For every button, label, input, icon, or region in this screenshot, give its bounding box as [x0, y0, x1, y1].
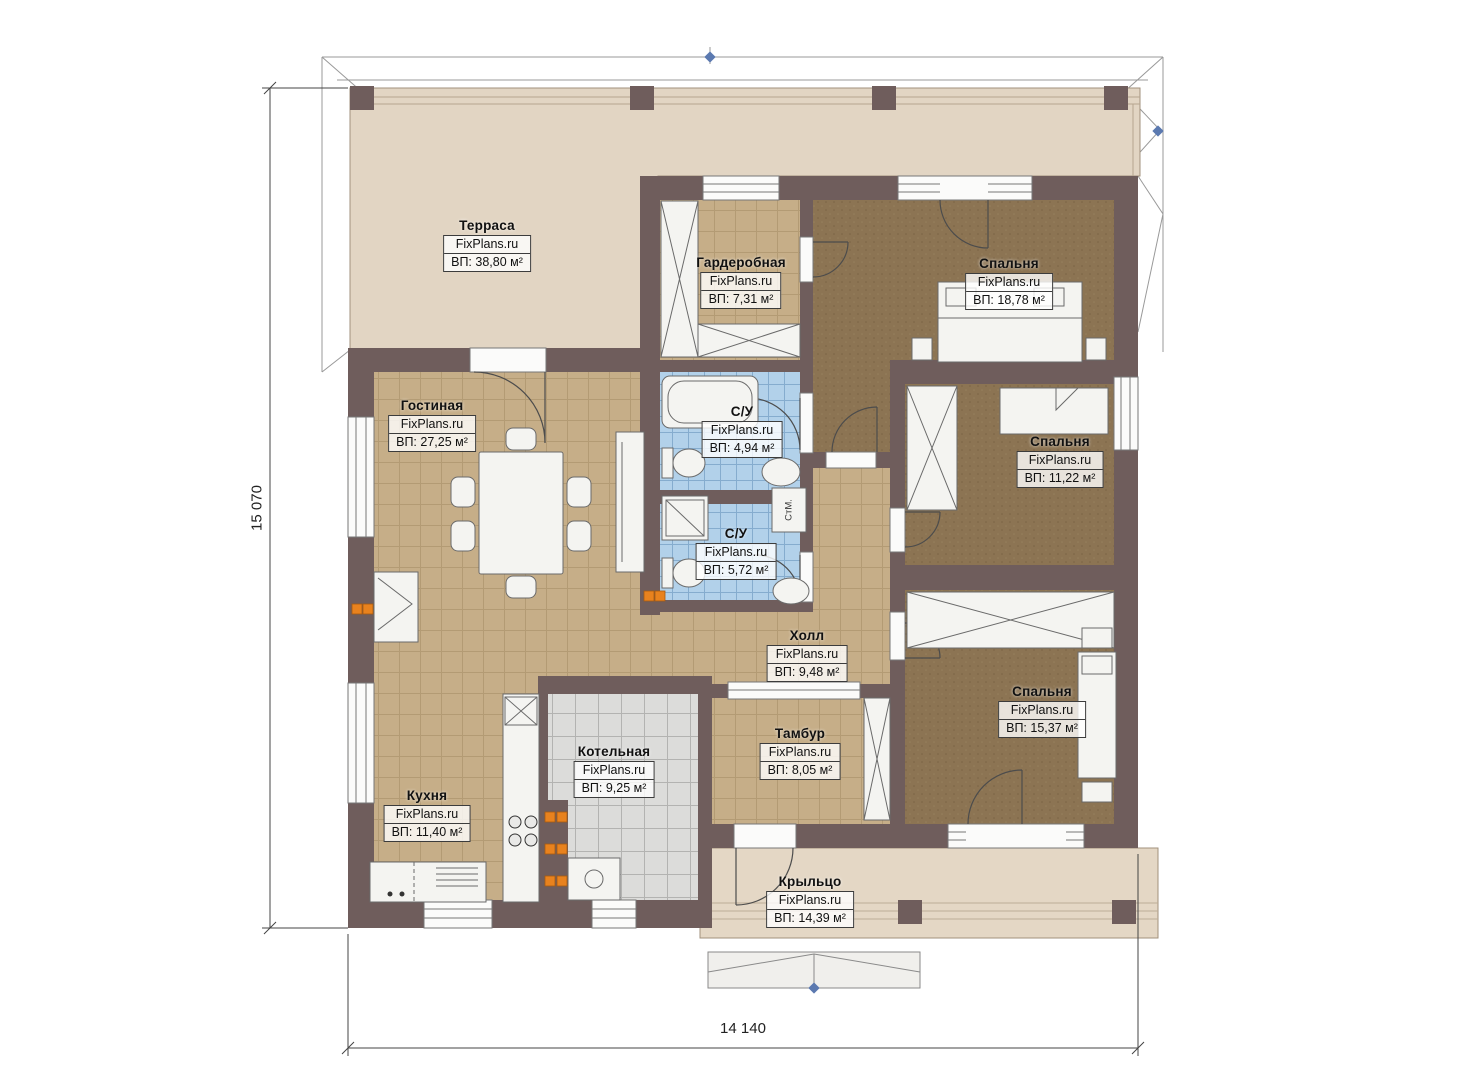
nightstand: [912, 338, 932, 360]
terrace-post: [350, 86, 374, 110]
room-name: Гостиная: [388, 398, 476, 413]
dining-table: [479, 452, 563, 574]
room-name: С/У: [702, 404, 783, 419]
sink: [773, 578, 809, 604]
watermark: FixPlans.ru: [703, 422, 782, 439]
room-area: ВП: 15,37 м²: [999, 719, 1085, 737]
watermark: FixPlans.ru: [767, 892, 853, 909]
room-area: ВП: 7,31 м²: [702, 290, 781, 308]
dimension-vertical: 15 070: [249, 485, 266, 531]
porch-post: [898, 900, 922, 924]
terrace-post: [630, 86, 654, 110]
watermark: FixPlans.ru: [697, 544, 776, 561]
fireplace: [374, 572, 418, 642]
chair: [451, 477, 475, 507]
window: [348, 683, 374, 803]
room-label-bedroom-1: Спальня FixPlans.ru ВП: 18,78 м²: [965, 256, 1053, 310]
watermark: FixPlans.ru: [389, 416, 475, 433]
sink: [762, 458, 800, 486]
watermark: FixPlans.ru: [966, 274, 1052, 291]
room-area: ВП: 9,48 м²: [768, 663, 847, 681]
room-area: ВП: 14,39 м²: [767, 909, 853, 927]
window: [703, 176, 779, 200]
room-label-boiler: Котельная FixPlans.ru ВП: 9,25 м²: [574, 744, 655, 798]
porch-post: [1112, 900, 1136, 924]
chair: [451, 521, 475, 551]
french-door-opening: [948, 824, 1084, 848]
watermark: FixPlans.ru: [444, 236, 530, 253]
room-label-bedroom-2: Спальня FixPlans.ru ВП: 11,22 м²: [1017, 434, 1104, 488]
room-label-living: Гостиная FixPlans.ru ВП: 27,25 м²: [388, 398, 476, 452]
stove-burner: [525, 834, 537, 846]
watermark: FixPlans.ru: [761, 744, 840, 761]
room-name: Терраса: [443, 218, 531, 233]
dimension-horizontal: 14 140: [720, 1020, 766, 1037]
room-label-kitchen: Кухня FixPlans.ru ВП: 11,40 м²: [384, 788, 471, 842]
washing-machine-label: СтМ.: [784, 499, 795, 521]
room-area: ВП: 27,25 м²: [389, 433, 475, 451]
room-area: ВП: 11,40 м²: [385, 823, 470, 841]
tv-unit: [616, 432, 644, 572]
door-opening: [890, 508, 905, 552]
room-name: Спальня: [1017, 434, 1104, 449]
terrace-post: [1104, 86, 1128, 110]
stove-burner: [525, 816, 537, 828]
door-opening: [800, 393, 813, 453]
door-opening: [470, 348, 546, 372]
boiler-unit: [568, 858, 620, 900]
room-area: ВП: 8,05 м²: [761, 761, 840, 779]
nightstand: [1082, 628, 1112, 648]
window: [1114, 377, 1138, 450]
room-label-terrace: Терраса FixPlans.ru ВП: 38,80 м²: [443, 218, 531, 272]
room-name: Котельная: [574, 744, 655, 759]
toilet: [662, 558, 673, 588]
watermark: FixPlans.ru: [1018, 452, 1103, 469]
room-label-vestibule: Тамбур FixPlans.ru ВП: 8,05 м²: [760, 726, 841, 780]
watermark: FixPlans.ru: [999, 702, 1085, 719]
room-name: Кухня: [384, 788, 471, 803]
toilet: [673, 449, 705, 477]
chair: [567, 477, 591, 507]
stove-burner: [509, 816, 521, 828]
window-door-opening: [898, 176, 1032, 200]
window: [424, 900, 492, 928]
room-name: С/У: [696, 526, 777, 541]
door-opening: [826, 452, 876, 468]
window: [592, 900, 636, 928]
terrace-post: [872, 86, 896, 110]
room-label-bedroom-3: Спальня FixPlans.ru ВП: 15,37 м²: [998, 684, 1086, 738]
window: [348, 417, 374, 537]
chair: [567, 521, 591, 551]
watermark: FixPlans.ru: [385, 806, 470, 823]
room-name: Крыльцо: [766, 874, 854, 889]
room-name: Спальня: [998, 684, 1086, 699]
watermark: FixPlans.ru: [768, 646, 847, 663]
room-label-wardrobe: Гардеробная FixPlans.ru ВП: 7,31 м²: [696, 255, 786, 309]
room-area: ВП: 38,80 м²: [444, 253, 530, 271]
door-opening: [890, 612, 905, 660]
nightstand: [1082, 782, 1112, 802]
room-label-bathroom-2: С/У FixPlans.ru ВП: 5,72 м²: [696, 526, 777, 580]
floor-plan-page: Терраса FixPlans.ru ВП: 38,80 м² Гардеро…: [0, 0, 1474, 1080]
stove-burner: [509, 834, 521, 846]
door-opening: [800, 237, 813, 282]
chair: [506, 576, 536, 598]
room-name: Гардеробная: [696, 255, 786, 270]
room-area: ВП: 18,78 м²: [966, 291, 1052, 309]
room-name: Тамбур: [760, 726, 841, 741]
room-name: Спальня: [965, 256, 1053, 271]
bed: [1000, 388, 1108, 434]
chair: [506, 428, 536, 450]
door-opening: [734, 824, 796, 848]
watermark: FixPlans.ru: [702, 273, 781, 290]
room-name: Холл: [767, 628, 848, 643]
watermark: FixPlans.ru: [575, 762, 654, 779]
room-area: ВП: 11,22 м²: [1018, 469, 1103, 487]
room-label-hall: Холл FixPlans.ru ВП: 9,48 м²: [767, 628, 848, 682]
room-label-bathroom-1: С/У FixPlans.ru ВП: 4,94 м²: [702, 404, 783, 458]
toilet: [662, 448, 673, 478]
room-label-porch: Крыльцо FixPlans.ru ВП: 14,39 м²: [766, 874, 854, 928]
room-area: ВП: 5,72 м²: [697, 561, 776, 579]
room-area: ВП: 4,94 м²: [703, 439, 782, 457]
room-area: ВП: 9,25 м²: [575, 779, 654, 797]
nightstand: [1086, 338, 1106, 360]
